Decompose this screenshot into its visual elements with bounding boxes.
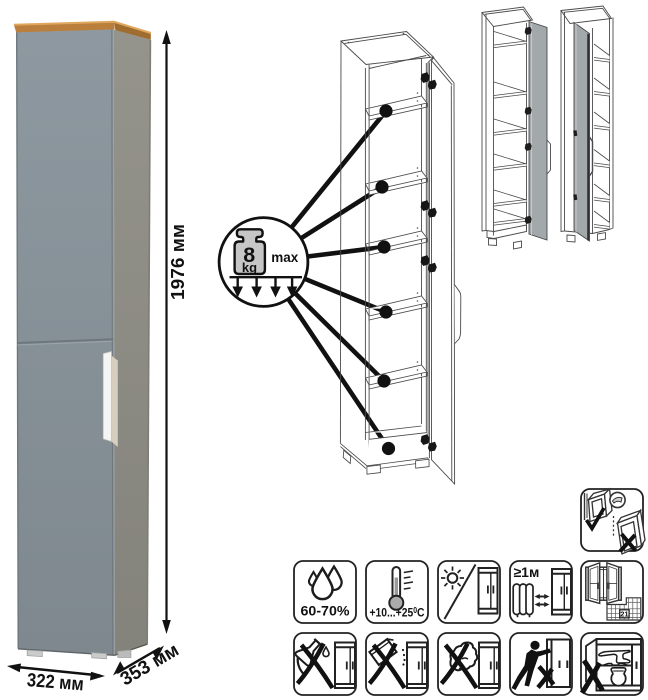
svg-text:21: 21	[620, 610, 628, 619]
svg-text:kg: kg	[242, 260, 257, 275]
svg-text:60-70%: 60-70%	[301, 604, 350, 620]
svg-text:+10...+250С: +10...+250С	[370, 606, 425, 620]
svg-text:max: max	[271, 250, 299, 265]
svg-text:1976 мм: 1976 мм	[167, 224, 188, 300]
svg-text:322 мм: 322 мм	[26, 670, 84, 695]
svg-text:≥1м: ≥1м	[514, 564, 540, 580]
